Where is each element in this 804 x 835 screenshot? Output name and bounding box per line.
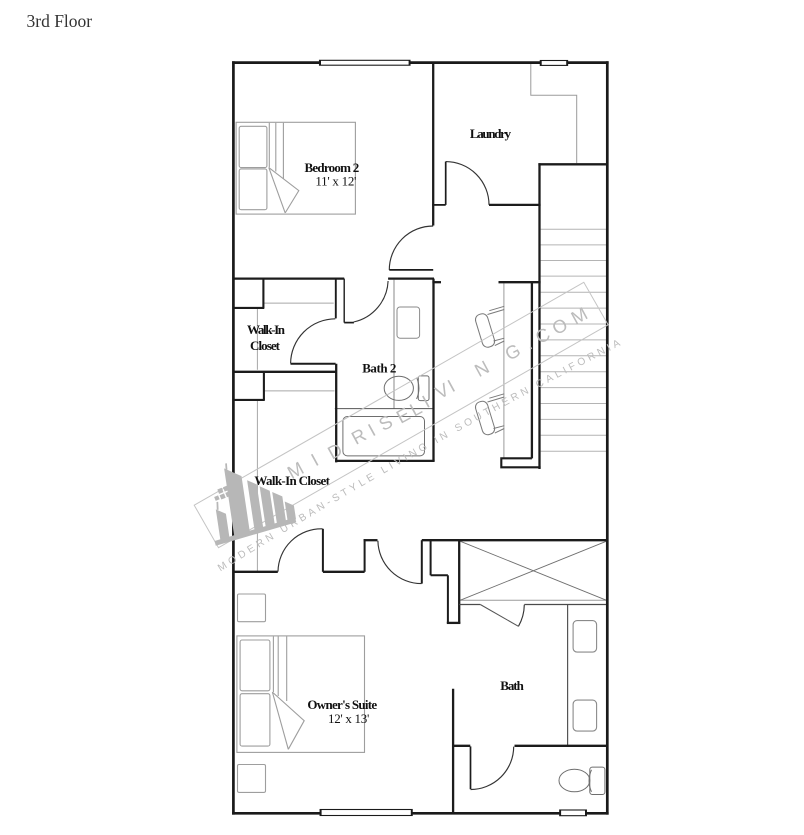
svg-text:Bath 2: Bath 2 — [362, 360, 396, 375]
svg-text:3rd Floor: 3rd Floor — [27, 11, 93, 31]
svg-text:Owner's Suite: Owner's Suite — [307, 697, 377, 712]
svg-text:Laundry: Laundry — [470, 126, 512, 141]
svg-text:Closet: Closet — [250, 338, 281, 353]
svg-text:12' x 13': 12' x 13' — [328, 711, 369, 726]
svg-text:Walk-In: Walk-In — [247, 322, 286, 337]
svg-text:Bath: Bath — [500, 678, 524, 693]
svg-text:11' x 12': 11' x 12' — [315, 173, 356, 188]
